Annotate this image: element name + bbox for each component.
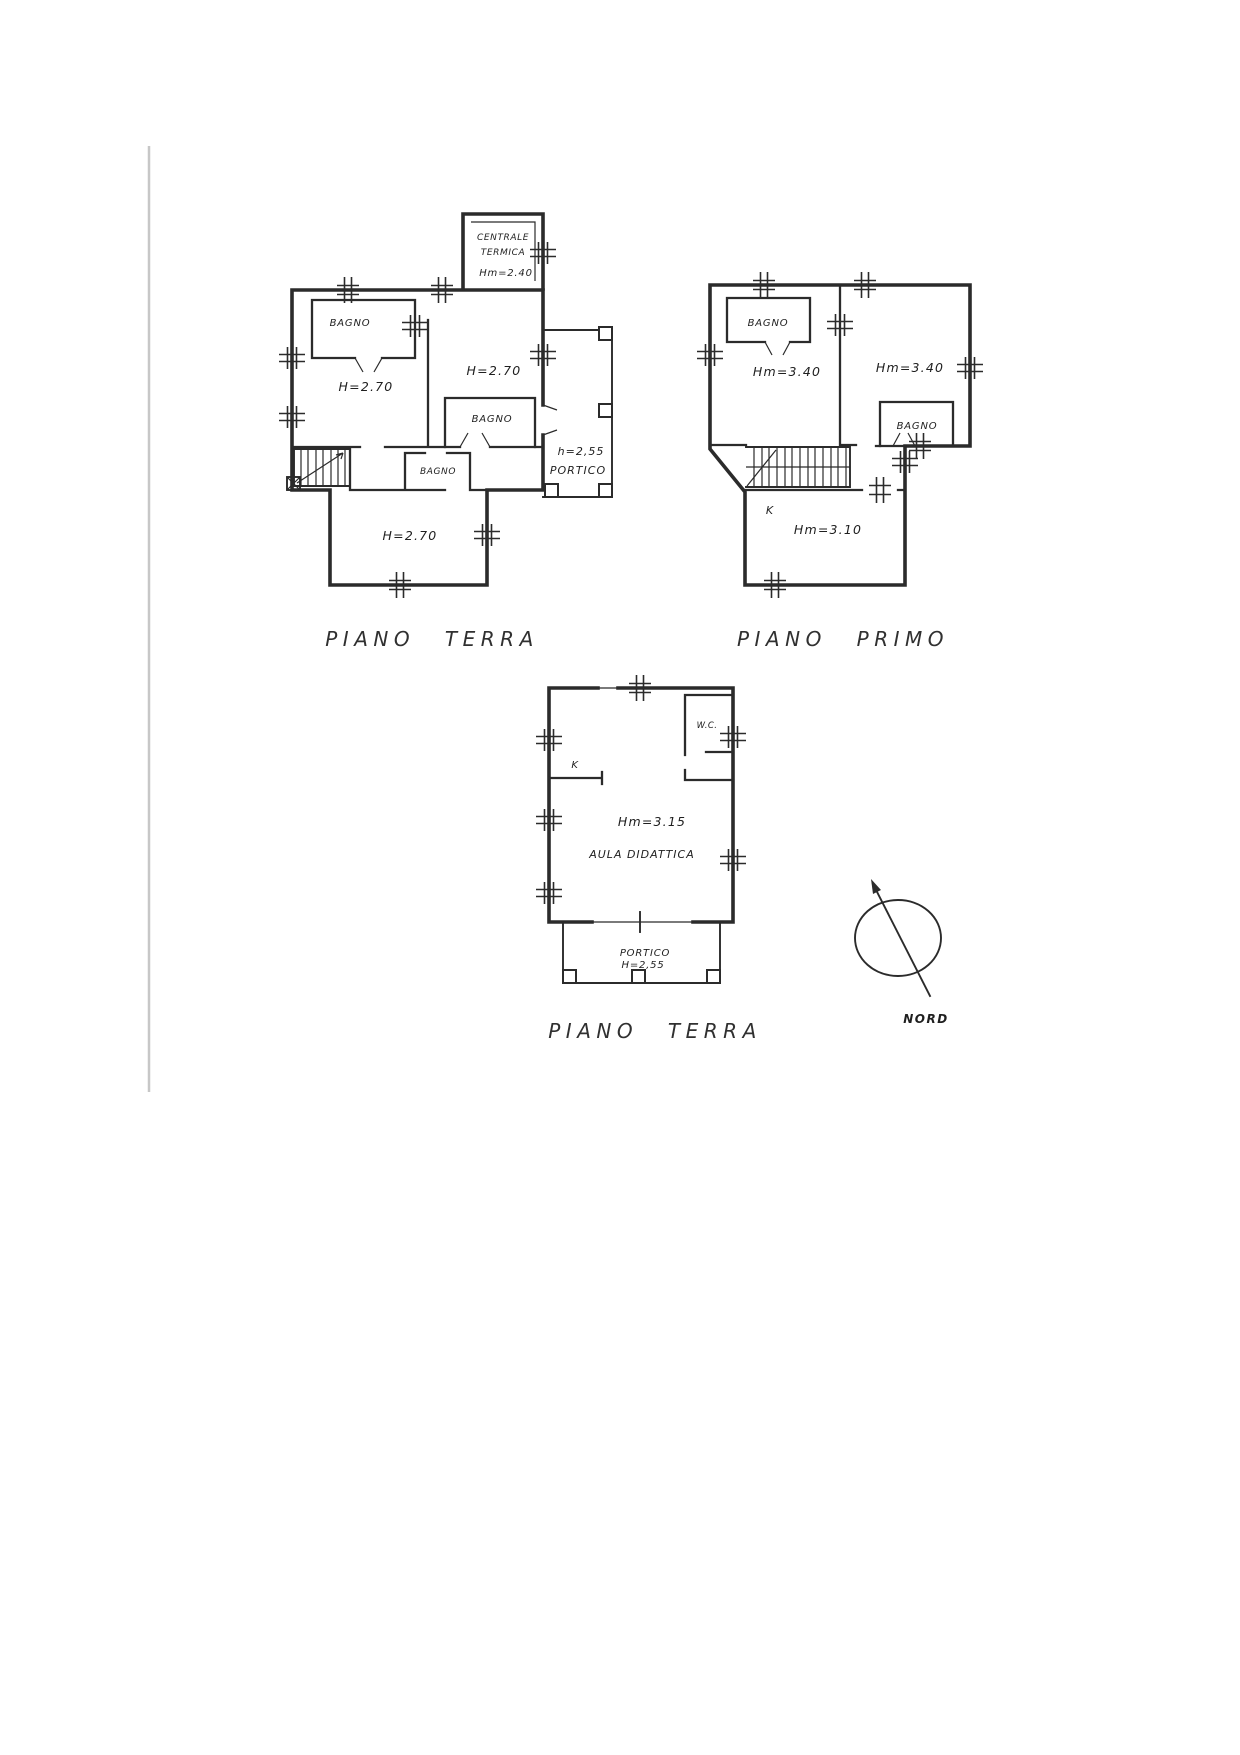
height-label-room: Hm=3.15 [618,814,686,829]
plan3-kitchen-wall [549,772,602,784]
plan2-caption: PIANO PRIMO [737,627,949,651]
north-compass: NORD [855,879,949,1026]
plan-ground-floor-annex: W.C. K Hm=3.15 AULA DIDATTICA PORTICO H=… [536,675,762,1043]
room-label-aula: AULA DIDATTICA [588,848,695,861]
room-label-bagno-e: BAGNO [897,421,938,432]
room-label-centrale-termica-2: TERMICA [481,248,526,258]
height-label-portico: H=2,55 [622,960,665,971]
height-label-room-s: Hm=3.10 [794,522,862,537]
height-label-room-s: H=2.70 [383,528,438,543]
height-label-portico: h=2,55 [558,445,605,458]
plan1-stairs [294,449,350,486]
room-label-wc: W.C. [697,721,718,731]
plan3-wc-walls [685,695,733,780]
plan2-bagno-e-door [893,433,915,446]
room-label-bagno-e: BAGNO [472,414,513,425]
height-label-room-w: Hm=3.40 [753,364,821,379]
plan1-bagno-e-door [460,433,490,447]
room-label-bagno-mid: BAGNO [420,467,456,477]
height-label-room-w: H=2.70 [339,379,394,394]
plan1-bagno-nw-walls [312,300,415,358]
compass-circle-icon [855,900,941,976]
floor-plan-drawing: CENTRALE TERMICA Hm=2.40 BAGNO H=2.70 H=… [0,0,1240,1755]
room-label-portico: PORTICO [620,948,670,959]
room-label-portico: PORTICO [550,464,606,477]
plan1-bagno-nw-door [355,358,382,372]
room-label-kitchen: K [766,504,774,517]
height-label-room-e: H=2.70 [467,363,522,378]
plan2-bagno-w-door [765,342,790,355]
scanned-floor-plan-page: CENTRALE TERMICA Hm=2.40 BAGNO H=2.70 H=… [0,0,1240,1755]
window-icon [869,477,891,503]
plan1-caption: PIANO TERRA [325,627,539,651]
plan3-caption: PIANO TERRA [548,1019,762,1043]
height-label-room-e: Hm=3.40 [876,360,944,375]
height-label-centrale: Hm=2.40 [479,268,533,279]
room-label-bagno-nw: BAGNO [330,318,371,329]
room-label-kitchen: K [571,760,579,771]
plan1-interior-walls [292,320,543,490]
plan-first-floor: BAGNO Hm=3.40 Hm=3.40 BAGNO K Hm=3.10 PI… [697,272,983,651]
room-label-bagno-w: BAGNO [748,318,789,329]
north-label: NORD [903,1012,948,1026]
room-label-centrale-termica: CENTRALE [477,233,529,243]
plan-ground-floor-main: CENTRALE TERMICA Hm=2.40 BAGNO H=2.70 H=… [279,214,612,651]
plan2-stairs [746,447,850,487]
compass-arrowhead-icon [871,879,881,894]
